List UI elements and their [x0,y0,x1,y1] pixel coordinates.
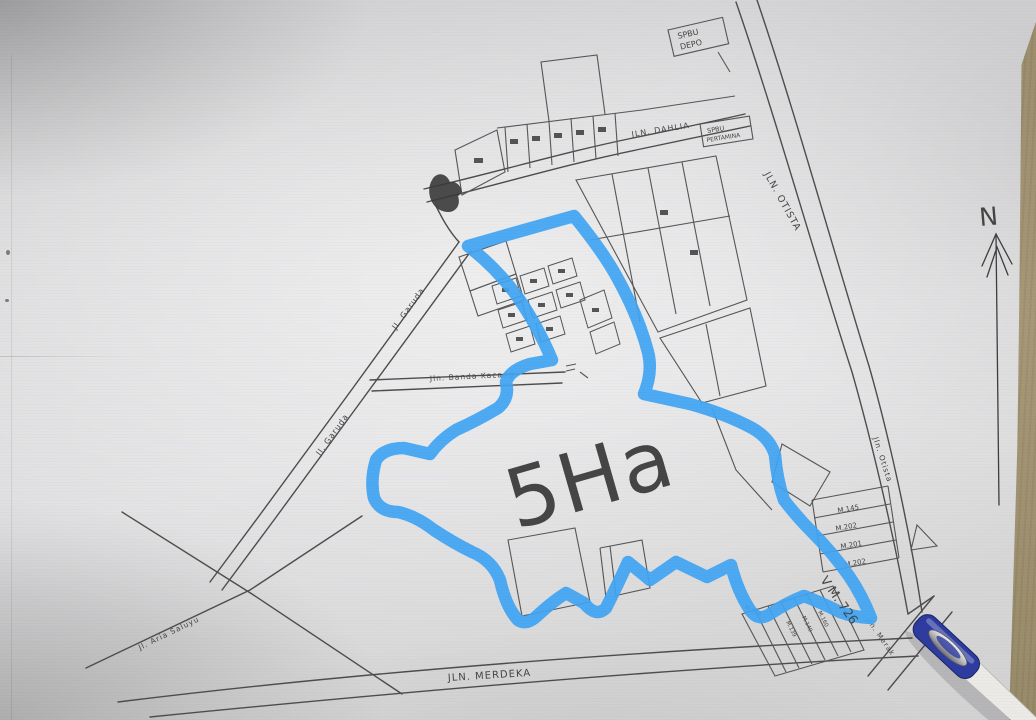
north-arrow [982,234,1012,505]
spbu-pertamina-label-1: SPBU [707,124,726,135]
parcel-label: M.202 [835,521,858,533]
street-label-merdeka: JLN. MERDEKA [447,668,532,684]
highlighted-area-boundary [372,216,871,622]
spbu-north-box: SPBU DEPO [668,17,729,56]
area-size-label: 5Ha [495,410,685,548]
street-label-otista-upper: JLN. OTISTA [761,169,803,233]
scribble-blob [429,174,461,212]
parcel-label: M.145 [837,503,860,515]
street-label-aria-saluyu: Jl. Aria Saluyu [136,614,201,652]
north-label: N [978,201,999,232]
parcel-label: M.160 [816,610,829,628]
village-blocks [492,258,620,354]
street-label-dahlia: JLN. DAHLIA [630,121,690,139]
map-drawing: SPBU DEPO SPBU PERTAMINA JLN. DAHLIA JLN… [0,0,1036,720]
pen [899,609,1036,720]
street-label-garuda-upper: Jl. Garuda [390,286,427,332]
parcel-label: M.201 [840,539,863,551]
photo-scene: SPBU DEPO SPBU PERTAMINA JLN. DAHLIA JLN… [0,0,1036,720]
parcel-label: M.140 [800,615,813,633]
